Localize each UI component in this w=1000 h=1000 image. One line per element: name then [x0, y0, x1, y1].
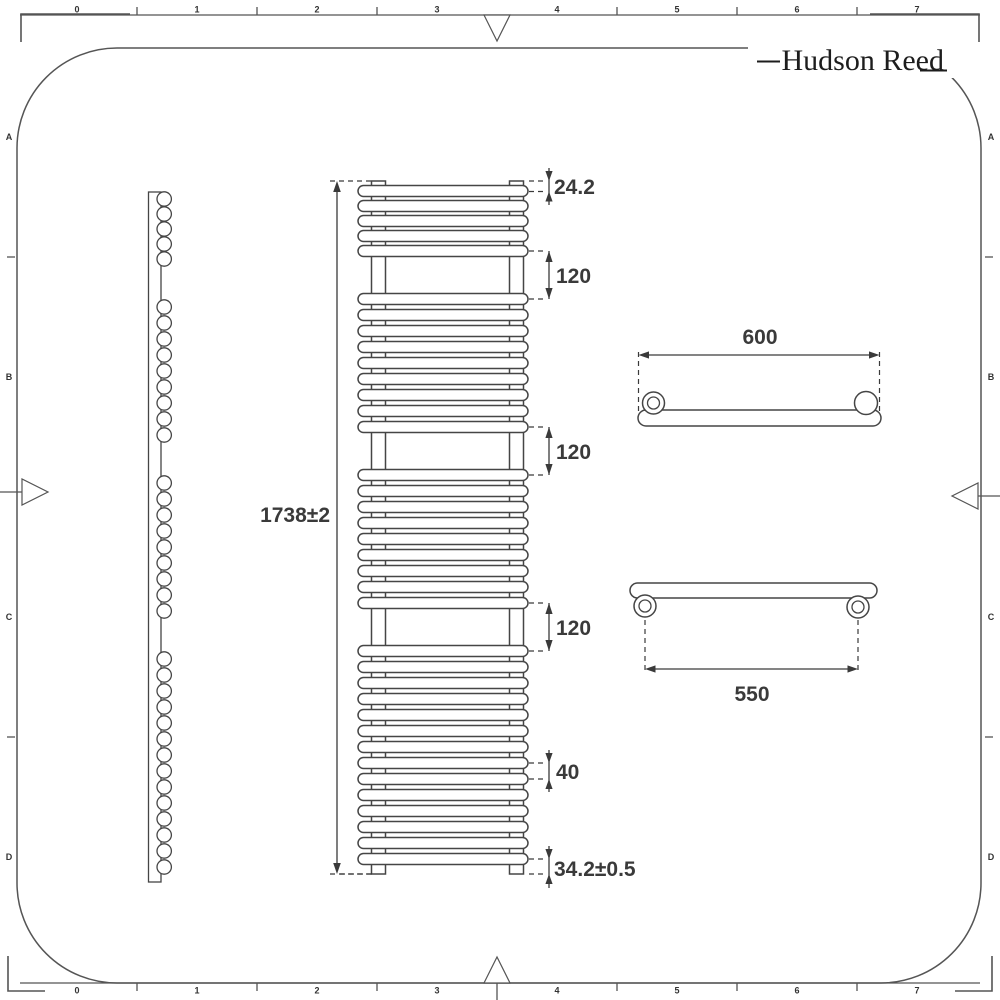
side-view: [149, 192, 172, 882]
towel-bar: [358, 726, 528, 737]
rung-circle: [157, 364, 171, 378]
rung-circle: [157, 732, 171, 746]
towel-bar: [358, 534, 528, 545]
rung-circle: [157, 572, 171, 586]
towel-bar: [358, 326, 528, 337]
right-bracket-icon: [847, 596, 869, 618]
corner-mark-top-right: [870, 14, 979, 42]
towel-bar: [358, 518, 528, 529]
towel-bar: [358, 470, 528, 481]
towel-bar: [358, 694, 528, 705]
rung-circle: [157, 222, 171, 236]
towel-bar: [358, 294, 528, 305]
top-offset-label: 24.2: [554, 176, 595, 199]
rung-circle: [157, 764, 171, 778]
ruler-number-top: 2: [314, 5, 319, 15]
rung-circle: [157, 604, 171, 618]
ruler-number-bottom: 3: [434, 986, 439, 996]
ruler-letter-left: A: [6, 132, 13, 142]
rung-circle: [157, 652, 171, 666]
rung-circle: [157, 540, 171, 554]
rung-circle: [157, 412, 171, 426]
towel-bar: [358, 342, 528, 353]
right-collector-icon: [855, 392, 878, 415]
dimension-gap-3: 120: [529, 603, 591, 651]
drawing-canvas: 0123456701234567ABCDABCD 1738±2 24.2 120: [0, 0, 1000, 1000]
center-arrow-top-icon: [484, 15, 510, 41]
corner-mark-bottom-left: [8, 956, 45, 991]
center-arrow-left-icon: [0, 479, 48, 505]
rung-circle: [157, 556, 171, 570]
towel-bar: [358, 566, 528, 577]
rung-circle: [157, 332, 171, 346]
ruler-number-top: 0: [74, 5, 79, 15]
rung-circle: [157, 396, 171, 410]
rung-circle: [157, 716, 171, 730]
rung-circle: [157, 428, 171, 442]
dimension-gap-1: 120: [529, 251, 591, 299]
towel-bar: [358, 216, 528, 227]
rung-circle: [157, 860, 171, 874]
towel-bar: [358, 374, 528, 385]
rung-circle: [157, 844, 171, 858]
fixing-centres-label: 550: [734, 683, 769, 706]
towel-bar: [358, 186, 528, 197]
ruler-letter-right: D: [988, 852, 995, 862]
towel-bar: [358, 201, 528, 212]
towel-bar: [358, 742, 528, 753]
rung-circle: [157, 476, 171, 490]
towel-bar: [358, 790, 528, 801]
ruler-number-bottom: 0: [74, 986, 79, 996]
corner-mark-bottom-right: [955, 956, 992, 991]
bottom-offset-label: 34.2±0.5: [554, 858, 636, 881]
towel-bar: [358, 486, 528, 497]
rung-circle: [157, 828, 171, 842]
top-view-550: 550: [630, 583, 877, 706]
towel-bar: [358, 310, 528, 321]
ruler-letter-right: C: [988, 612, 995, 622]
side-view-panel: [149, 192, 162, 882]
left-valve-icon: [643, 392, 665, 414]
ruler-letter-left: C: [6, 612, 13, 622]
rung-circle: [157, 780, 171, 794]
rung-circle: [157, 508, 171, 522]
towel-bar: [358, 358, 528, 369]
ruler-number-top: 5: [674, 5, 679, 15]
corner-mark-top-left: [21, 14, 130, 42]
rung-circle: [157, 684, 171, 698]
front-view: [358, 181, 528, 874]
dimension-gap-2: 120: [529, 427, 591, 475]
ruler-number-top: 1: [194, 5, 199, 15]
towel-bar: [358, 550, 528, 561]
brand-logo: Hudson Reed: [748, 44, 960, 78]
left-bracket-icon: [634, 595, 656, 617]
rung-circle: [157, 237, 171, 251]
ruler-number-bottom: 2: [314, 986, 319, 996]
bottom-view-bar: [630, 583, 877, 598]
ruler-number-top: 7: [914, 5, 919, 15]
ruler-letter-right: B: [988, 372, 995, 382]
towel-bar: [358, 422, 528, 433]
towel-bar: [358, 502, 528, 513]
rung-circle: [157, 192, 171, 206]
towel-bar: [358, 406, 528, 417]
towel-bar: [358, 662, 528, 673]
towel-bar: [358, 806, 528, 817]
bar-pitch-label: 40: [556, 761, 579, 784]
towel-bar: [358, 854, 528, 865]
rung-circle: [157, 524, 171, 538]
top-view-600: 600: [638, 326, 881, 426]
ruler-letter-right: A: [988, 132, 995, 142]
overall-width-label: 600: [742, 326, 777, 349]
ruler-letter-left: B: [6, 372, 13, 382]
rung-circle: [157, 668, 171, 682]
rung-circle: [157, 700, 171, 714]
towel-bar: [358, 838, 528, 849]
ruler-number-bottom: 4: [554, 986, 559, 996]
rung-circle: [157, 588, 171, 602]
towel-bar: [358, 582, 528, 593]
gap-1-label: 120: [556, 265, 591, 288]
towel-bar: [358, 822, 528, 833]
dimension-bar-pitch: 40: [529, 750, 579, 792]
rung-circle: [157, 207, 171, 221]
towel-bar: [358, 774, 528, 785]
dimension-top-offset: 24.2: [529, 168, 595, 205]
overall-height-label: 1738±2: [260, 504, 330, 527]
gap-3-label: 120: [556, 617, 591, 640]
rung-circle: [157, 300, 171, 314]
towel-bar: [358, 231, 528, 242]
towel-bar: [358, 758, 528, 769]
ruler-number-bottom: 5: [674, 986, 679, 996]
center-arrow-bottom-icon: [484, 957, 510, 1000]
towel-bar: [358, 246, 528, 257]
towel-bar: [358, 390, 528, 401]
ruler-number-top: 3: [434, 5, 439, 15]
rung-circle: [157, 748, 171, 762]
rung-circle: [157, 812, 171, 826]
center-arrow-right-icon: [952, 483, 1000, 509]
ruler-letter-left: D: [6, 852, 13, 862]
ruler-number-bottom: 7: [914, 986, 919, 996]
towel-bar: [358, 646, 528, 657]
brand-name: Hudson Reed: [782, 44, 944, 77]
top-view-bar: [638, 410, 881, 426]
ruler-number-bottom: 1: [194, 986, 199, 996]
rung-circle: [157, 492, 171, 506]
towel-bar: [358, 710, 528, 721]
technical-drawing-sheet: 0123456701234567ABCDABCD 1738±2 24.2 120: [0, 0, 1000, 1000]
ruler-number-top: 6: [794, 5, 799, 15]
rung-circle: [157, 796, 171, 810]
ruler-number-bottom: 6: [794, 986, 799, 996]
dimension-overall-height: 1738±2: [260, 181, 372, 874]
rung-circle: [157, 348, 171, 362]
rung-circle: [157, 380, 171, 394]
rung-circle: [157, 316, 171, 330]
gap-2-label: 120: [556, 441, 591, 464]
towel-bar: [358, 598, 528, 609]
rung-circle: [157, 252, 171, 266]
ruler-number-top: 4: [554, 5, 559, 15]
towel-bar: [358, 678, 528, 689]
